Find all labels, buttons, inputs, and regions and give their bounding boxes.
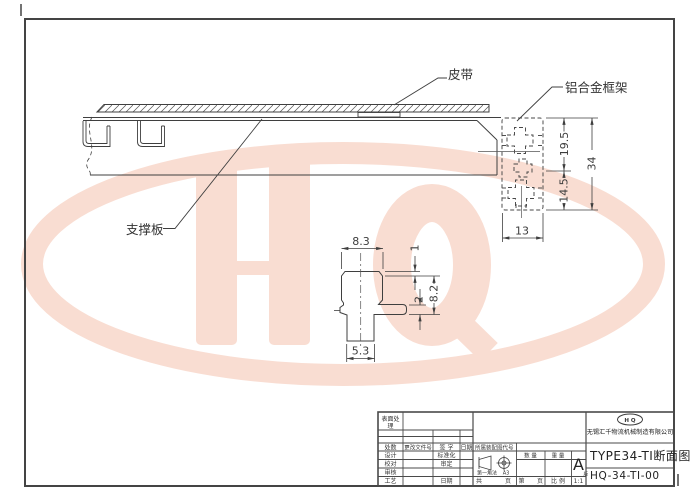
audit-label: 审核 <box>384 469 396 477</box>
drawing-title: TYPE34-TI断面图 <box>589 448 691 463</box>
surface-treatment-label-1: 表面处 <box>381 415 399 423</box>
rev-count-label: 处数 <box>384 444 396 452</box>
company-name: 无锡汇千物流机械制造有限公司 <box>587 428 674 436</box>
plate-channel-2 <box>138 121 165 147</box>
first-angle-projection-icon <box>479 456 512 471</box>
surface-treatment-label-2: 理 <box>387 423 393 430</box>
dim-frame-total: 34 <box>586 157 599 171</box>
design-label: 设计 <box>384 452 396 460</box>
rev-doc-label: 更改文件号 <box>404 444 432 452</box>
dim-frame-upper: 19.5 <box>558 132 571 157</box>
date-label: 日期 <box>440 477 452 485</box>
leader-frame <box>517 87 563 121</box>
leader-belt <box>394 78 447 105</box>
belt-label: 皮带 <box>448 67 473 82</box>
page-no-label: 第 <box>518 477 524 485</box>
frame-label: 铝合金框架 <box>565 80 628 95</box>
scale-value: 1:1 <box>574 478 584 485</box>
dim-frame-width: 13 <box>515 225 529 238</box>
assembly-code-label: 所属装配图代号 <box>475 444 514 452</box>
check-label: 校对 <box>384 460 396 468</box>
watermark-letter-q <box>392 203 489 352</box>
plate-label: 支撑板 <box>126 222 164 237</box>
drawing-number: HQ-34-TI-00 <box>590 470 660 482</box>
standardize-label: 标准化 <box>437 452 455 460</box>
sheet-size: A3 <box>503 471 510 477</box>
revision-suffix: 版 <box>584 471 589 478</box>
revision-letter: A <box>573 455 584 474</box>
frame-tslot-upper <box>507 128 533 154</box>
dim-head-width: 8.3 <box>352 235 370 248</box>
dim-stem-width: 5.3 <box>352 345 370 358</box>
rev-date-label: 日期 <box>460 444 472 452</box>
dim-slot-height: 8.2 <box>428 285 441 303</box>
pages-unit1: 页 <box>505 478 511 485</box>
dim-top-offset: 1 <box>409 245 422 252</box>
plate-channel-1 <box>83 121 110 147</box>
sheet-border <box>21 4 678 486</box>
dim-frame-lower: 14.5 <box>558 178 571 203</box>
hq-logo-text: H Q <box>624 418 636 424</box>
process-label: 工艺 <box>384 477 396 485</box>
rev-sign-label: 签 字 <box>440 444 454 452</box>
qty-label: 数 量 <box>524 452 537 460</box>
weight-label: 重 量 <box>552 452 565 460</box>
projection-label: 第一角法 <box>477 470 497 477</box>
watermark-letter-h <box>196 155 310 345</box>
drawing-sheet: 皮带 铝合金框架 支撑板 19.5 14.5 34 13 8.3 1 8.2 2… <box>0 0 700 495</box>
dim-arm-thick: 2 <box>413 296 426 303</box>
belt-guide-strip <box>358 113 400 118</box>
scale-label: 比 例 <box>551 477 565 485</box>
pages-total-label: 共 <box>476 477 482 485</box>
belt-section <box>97 105 489 118</box>
approve-label: 审定 <box>440 460 452 468</box>
pages-unit2: 页 <box>537 478 543 485</box>
drawing-canvas: 皮带 铝合金框架 支撑板 19.5 14.5 34 13 8.3 1 8.2 2… <box>0 0 700 495</box>
